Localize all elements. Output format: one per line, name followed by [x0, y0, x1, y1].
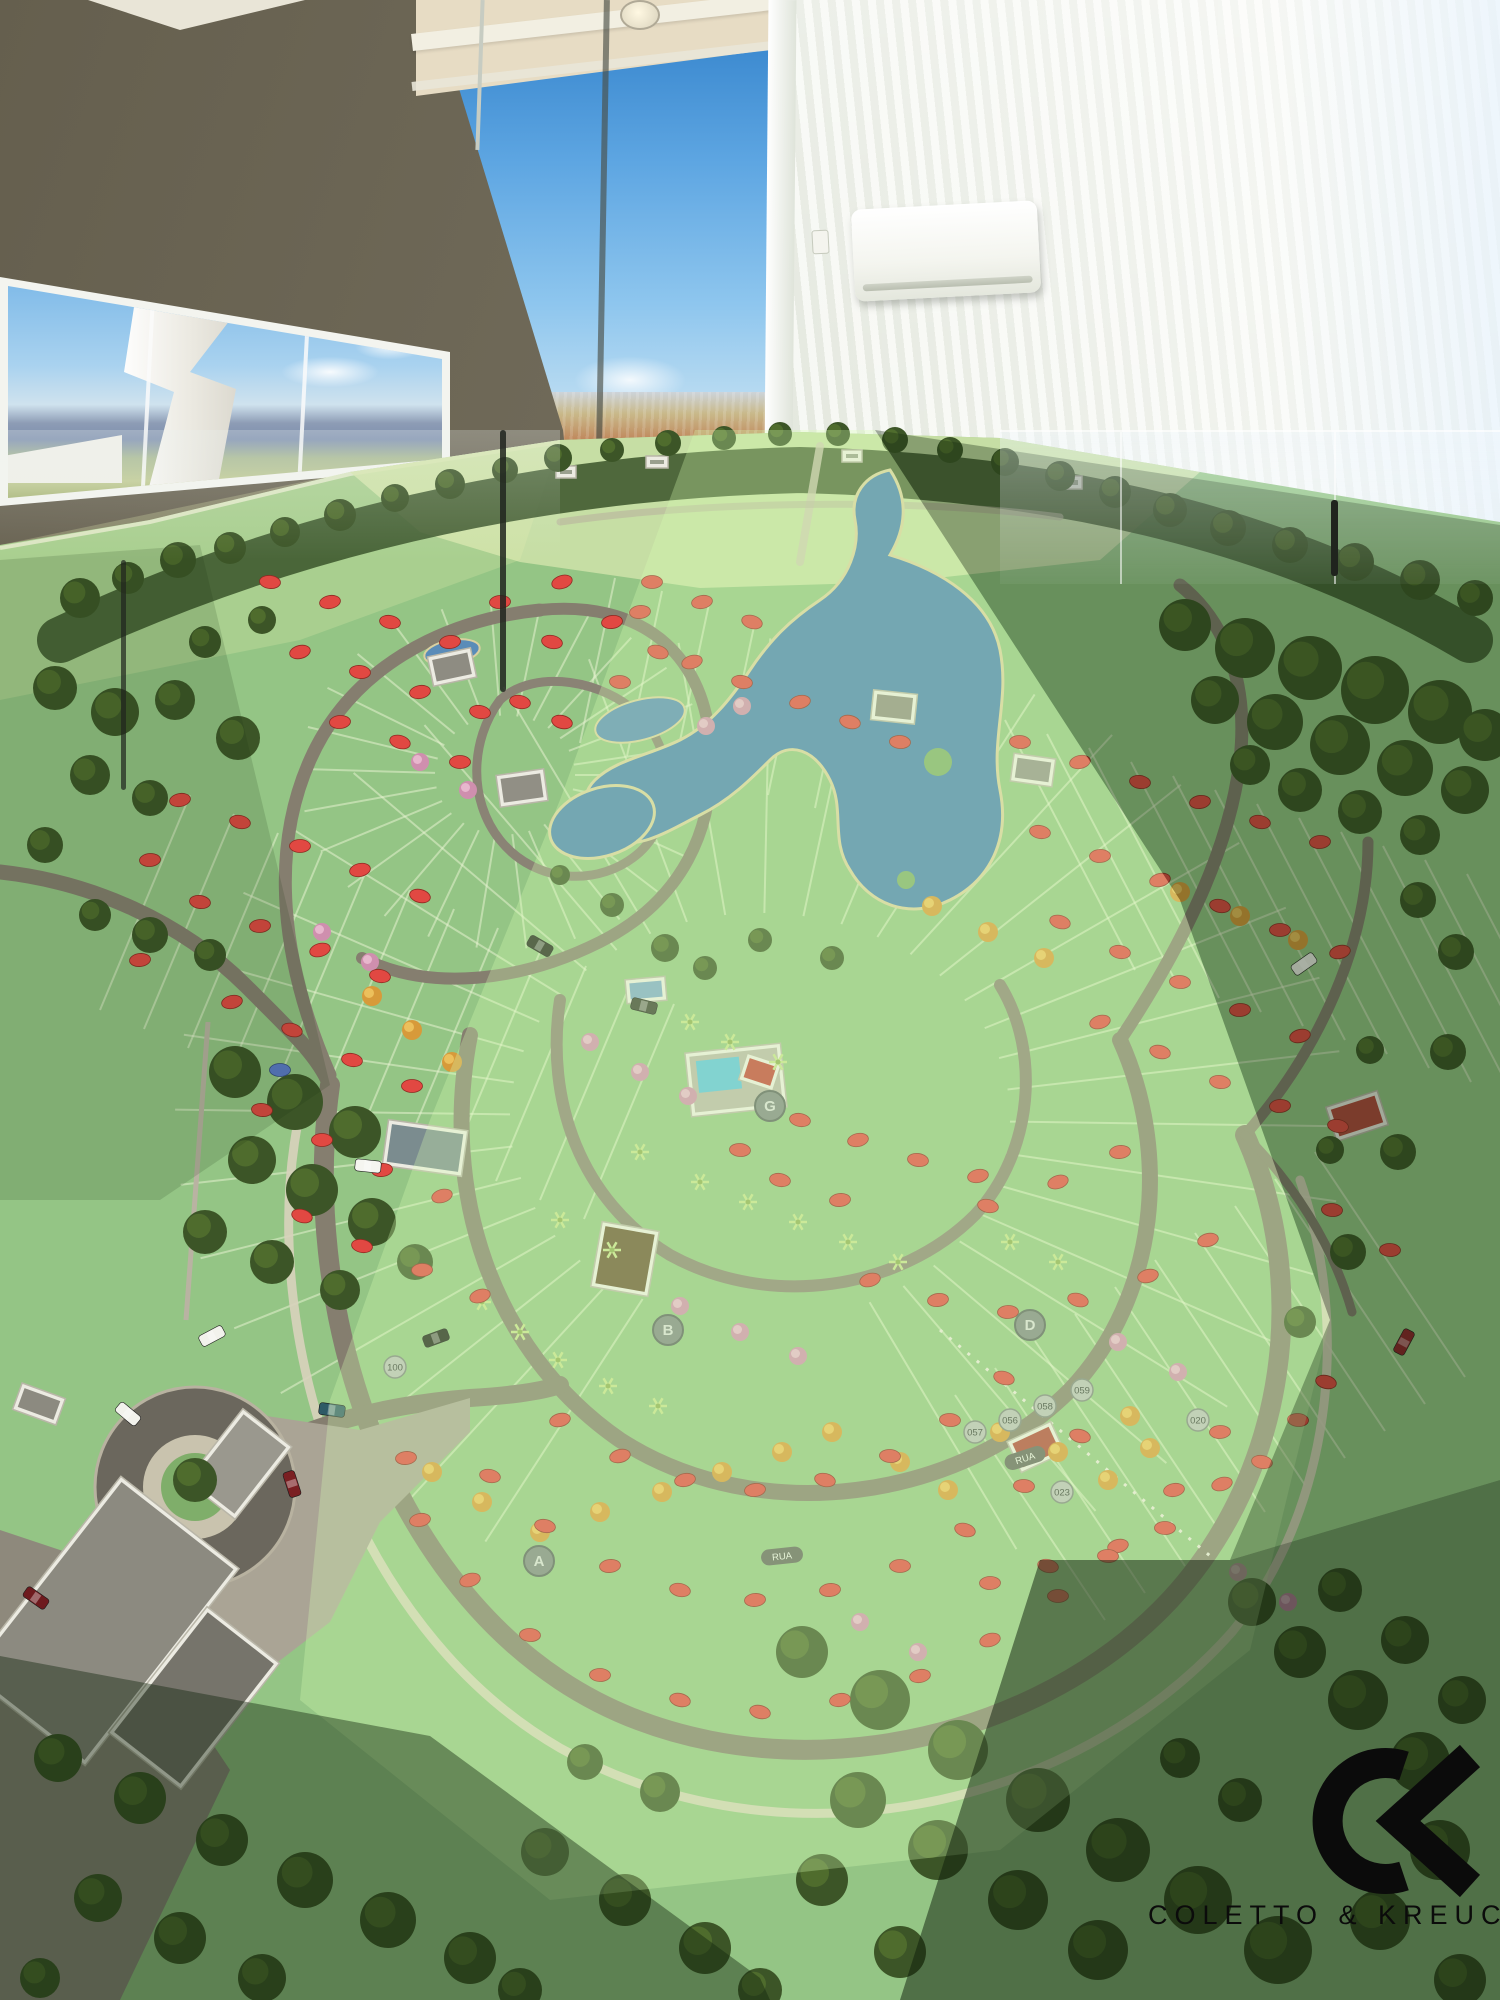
model-car	[354, 1159, 381, 1174]
glass-balustrade	[0, 430, 560, 560]
glass-clamp-rod	[1331, 500, 1338, 576]
shed	[646, 456, 668, 468]
ck-monogram-logo	[1286, 1742, 1486, 1922]
glass-balustrade	[1000, 430, 1500, 584]
house	[496, 769, 548, 807]
scale-model: ABDG057056058059020023100RUARUA	[0, 0, 1500, 2000]
glass-clamp-rod	[121, 560, 126, 790]
showroom-photo: ABDG057056058059020023100RUARUA COLETTO …	[0, 0, 1500, 2000]
watermark-company-name: COLETTO & KREUCI	[1148, 1900, 1500, 1931]
glass-clamp-rod	[500, 430, 506, 692]
glass-seam	[1120, 432, 1122, 584]
